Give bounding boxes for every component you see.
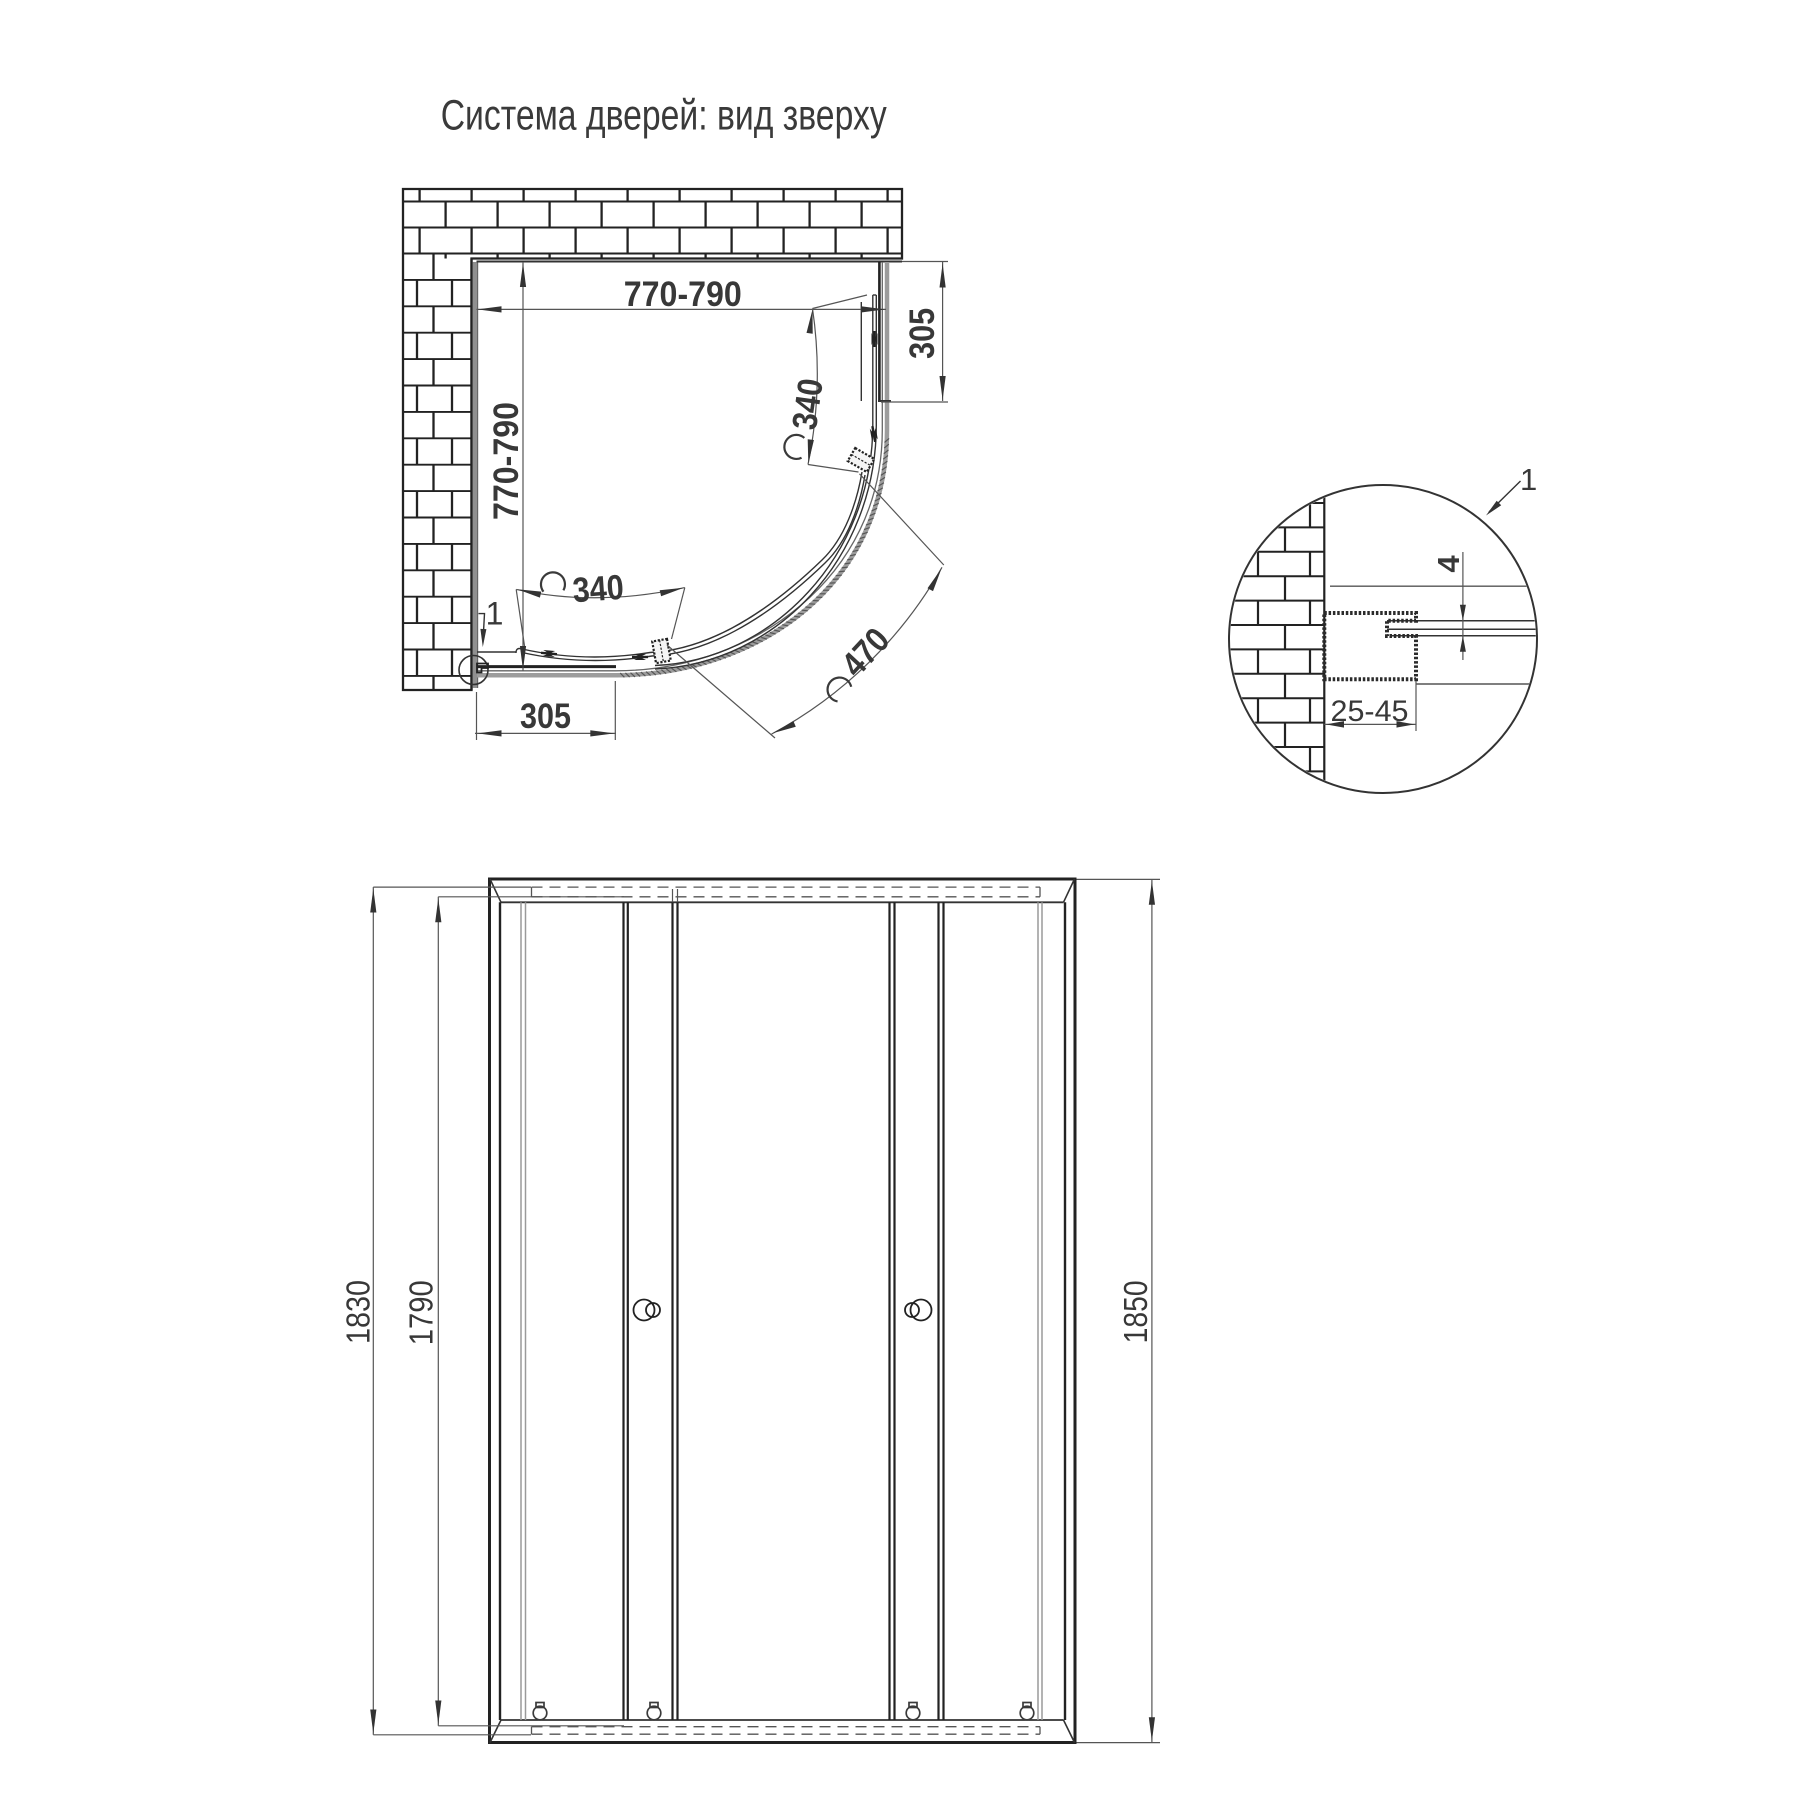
svg-text:1790: 1790: [403, 1280, 440, 1345]
svg-text:305: 305: [520, 697, 571, 736]
svg-text:340: 340: [785, 376, 831, 432]
svg-text:770-790: 770-790: [624, 275, 742, 314]
svg-text:305: 305: [903, 308, 942, 359]
svg-text:1: 1: [486, 596, 504, 632]
svg-text:Система дверей: вид зверху: Система дверей: вид зверху: [441, 93, 888, 140]
svg-text:1830: 1830: [340, 1280, 377, 1344]
svg-text:340: 340: [571, 568, 625, 610]
svg-text:4: 4: [1431, 555, 1466, 573]
svg-text:1: 1: [1520, 462, 1537, 497]
svg-text:1850: 1850: [1117, 1280, 1154, 1343]
svg-text:25-45: 25-45: [1331, 695, 1409, 728]
svg-text:770-790: 770-790: [487, 402, 526, 520]
